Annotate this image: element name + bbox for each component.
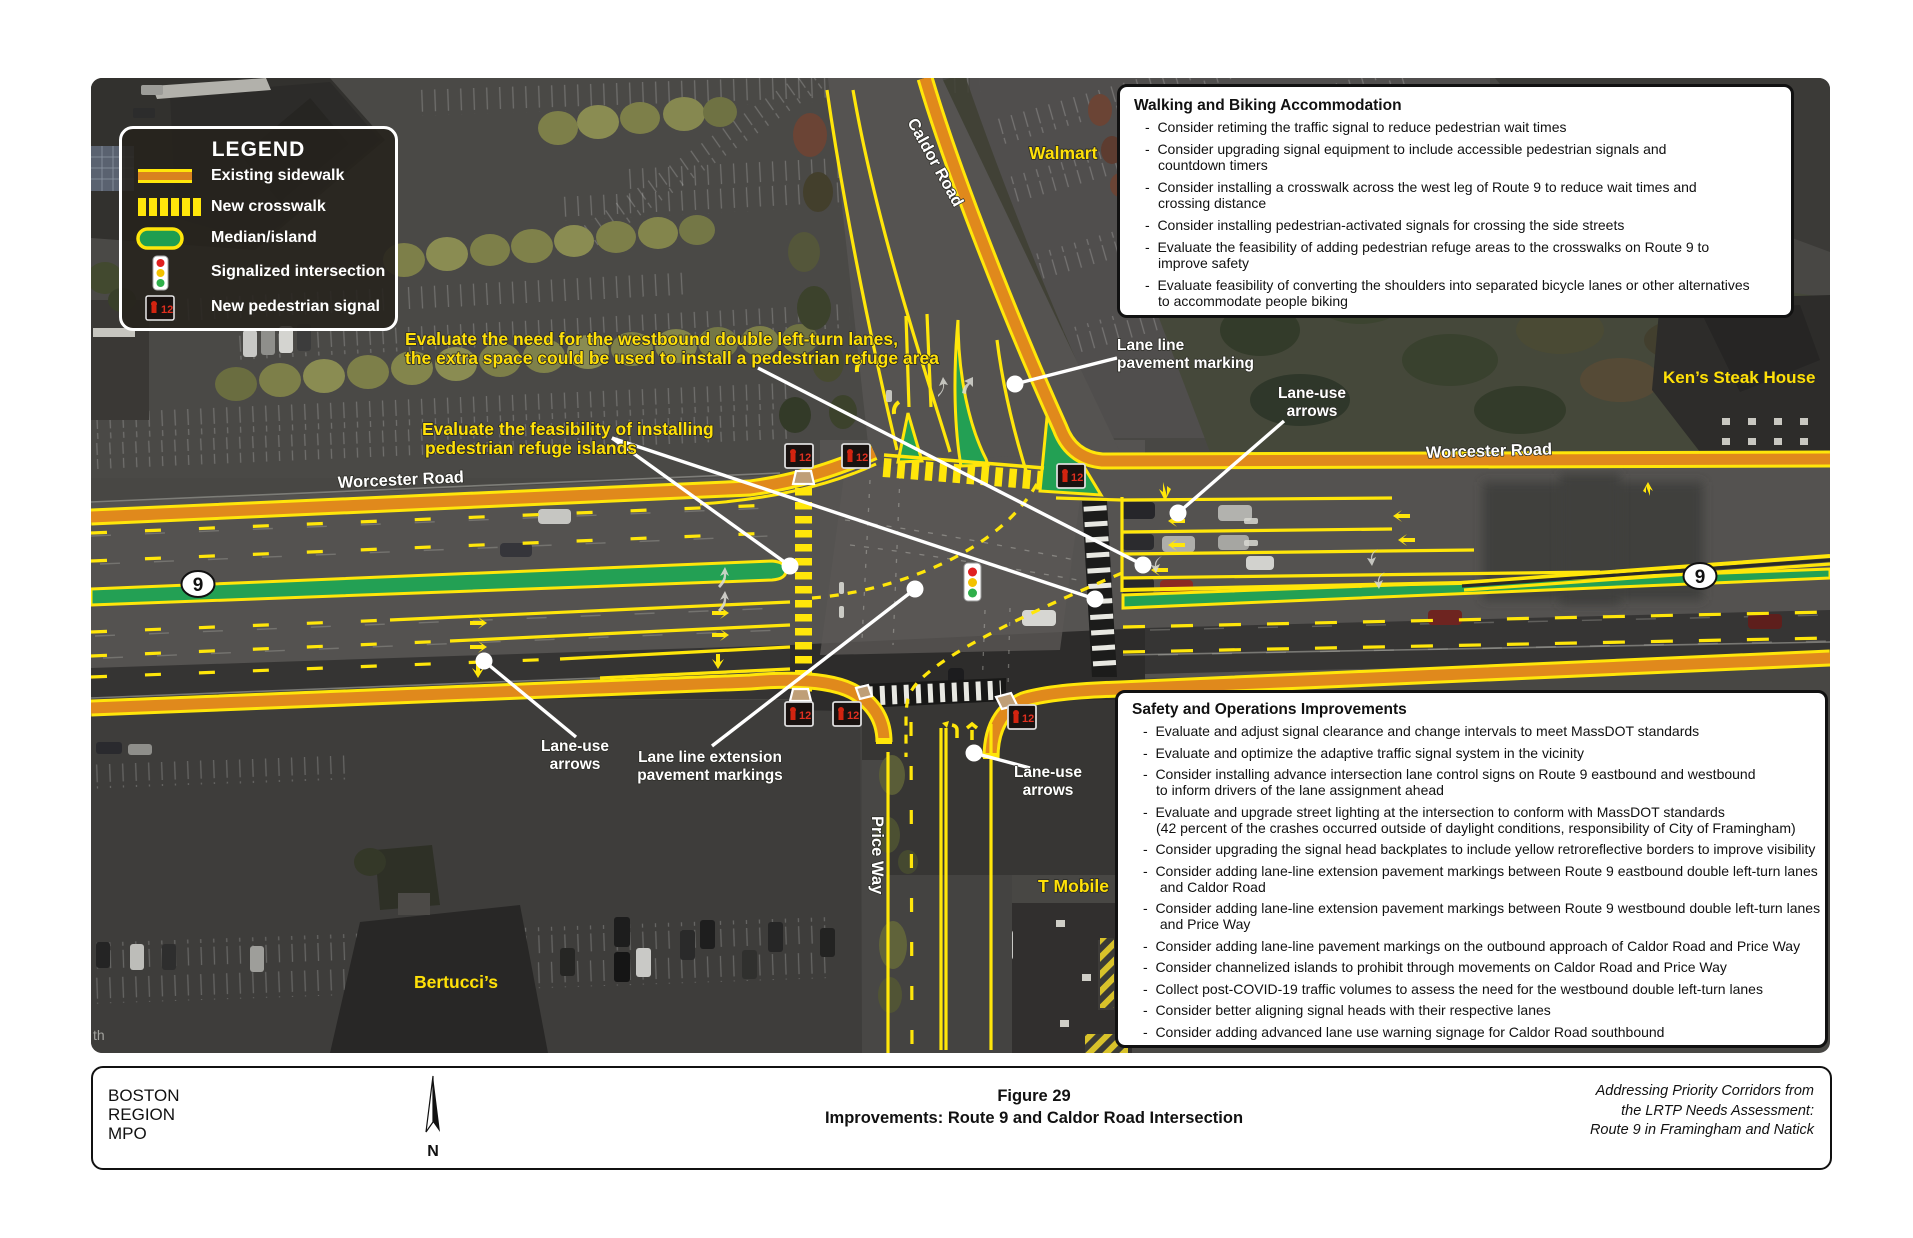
svg-text:the extra space could be used: the extra space could be used to install… xyxy=(405,348,939,368)
svg-text:Lane line extension: Lane line extension xyxy=(638,749,782,766)
svg-text:9: 9 xyxy=(1695,567,1706,588)
svg-text:12: 12 xyxy=(799,452,811,464)
svg-text:9: 9 xyxy=(193,575,204,596)
svg-text:Lane-use: Lane-use xyxy=(1014,764,1082,781)
svg-text:T Mobile: T Mobile xyxy=(1038,876,1109,896)
svg-text:arrows: arrows xyxy=(1023,782,1074,799)
svg-text:Walmart: Walmart xyxy=(1029,143,1098,163)
svg-text:Evaluate the feasibility of in: Evaluate the feasibility of installing xyxy=(422,419,714,439)
svg-text:Ken’s Steak House: Ken’s Steak House xyxy=(1663,368,1815,387)
svg-text:Evaluate the need for the west: Evaluate the need for the westbound doub… xyxy=(405,329,898,349)
svg-text:Lane line: Lane line xyxy=(1117,337,1185,354)
svg-text:Bertucci’s: Bertucci’s xyxy=(414,972,498,992)
svg-text:Lane-use: Lane-use xyxy=(541,738,609,755)
svg-text:arrows: arrows xyxy=(1287,403,1338,420)
svg-text:Price Way: Price Way xyxy=(868,816,886,895)
svg-text:pavement marking: pavement marking xyxy=(1117,355,1254,372)
svg-text:pedestrian refuge islands: pedestrian refuge islands xyxy=(425,438,637,458)
svg-text:12: 12 xyxy=(161,304,173,316)
svg-text:th: th xyxy=(93,1027,105,1043)
svg-text:12: 12 xyxy=(1022,713,1034,725)
svg-text:Lane-use: Lane-use xyxy=(1278,385,1346,402)
svg-text:12: 12 xyxy=(799,710,811,722)
svg-text:12: 12 xyxy=(856,452,868,464)
svg-text:12: 12 xyxy=(1071,472,1083,484)
svg-text:12: 12 xyxy=(847,710,859,722)
svg-text:pavement markings: pavement markings xyxy=(637,767,783,784)
svg-text:Worcester Road: Worcester Road xyxy=(1426,440,1553,462)
svg-text:arrows: arrows xyxy=(550,756,601,773)
svg-text:N: N xyxy=(427,1143,439,1160)
